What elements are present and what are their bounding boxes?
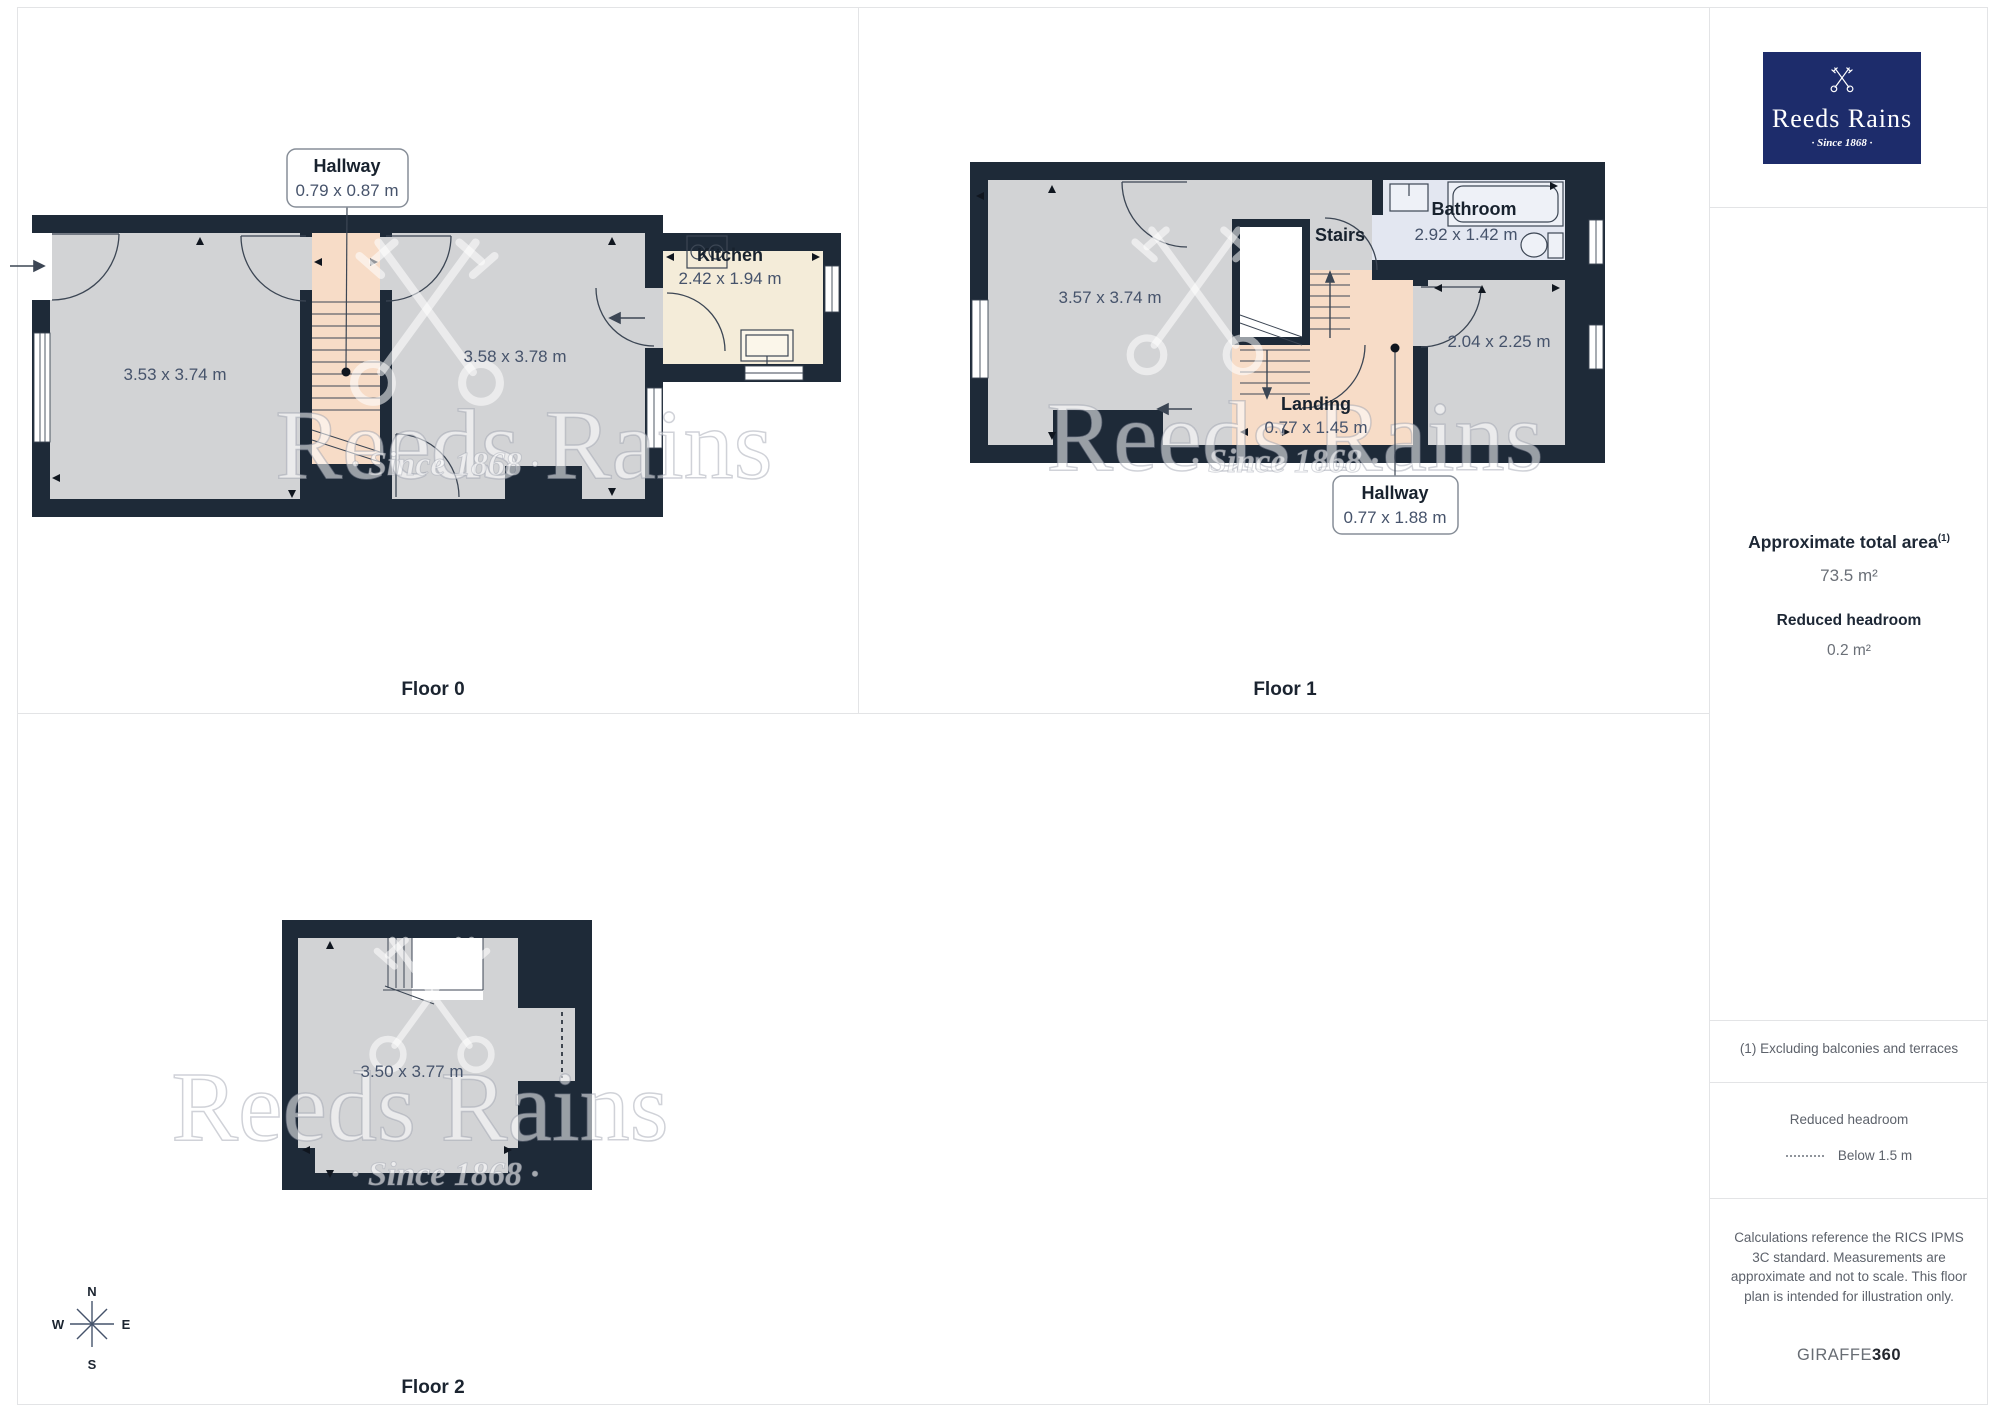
floor2-label: Floor 2 xyxy=(401,1377,464,1399)
compass-south-label: S xyxy=(88,1357,97,1372)
floorplan-page: Reeds Rains · Since 1868 · 3.53 x 3.74 m… xyxy=(0,0,2000,1414)
watermark-since: · Since 1868 · xyxy=(351,446,539,483)
floor1-callout-title: Hallway xyxy=(1361,483,1428,503)
legend-title: Reduced headroom xyxy=(1710,1112,1988,1127)
floorplans-canvas: Reeds Rains · Since 1868 · 3.53 x 3.74 m… xyxy=(0,0,2000,1414)
disclaimer-text: Calculations reference the RICS IPMS 3C … xyxy=(1726,1228,1972,1306)
floor1-callout-dims: 0.77 x 1.88 m xyxy=(1343,508,1446,527)
total-area-value: 73.5 m² xyxy=(1710,566,1988,586)
reduced-headroom-title: Reduced headroom xyxy=(1710,612,1988,630)
logo-crossed-keys-icon xyxy=(1807,52,1877,104)
floor0-label: Floor 0 xyxy=(401,679,464,701)
toilet-icon xyxy=(1521,233,1563,258)
bathroom-label: Bathroom xyxy=(1432,199,1517,219)
floor1-room-left-dims: 3.57 x 3.74 m xyxy=(1058,288,1161,307)
total-area-title-text: Approximate total area xyxy=(1748,532,1938,552)
watermark-since: · Since 1868 · xyxy=(1191,443,1379,480)
floor2-plan: Reeds Rains · Since 1868 · 3.50 x 3.77 m xyxy=(171,920,668,1193)
watermark-since: · Since 1868 · xyxy=(351,1156,539,1193)
total-area-title: Approximate total area(1) xyxy=(1710,532,1988,553)
watermark-brand: Reeds Rains xyxy=(275,389,772,500)
reeds-rains-logo: Reeds Rains · Since 1868 · xyxy=(1763,52,1921,164)
floor1-plan: Reeds Rains · Since 1868 · 3.57 x 3.74 m… xyxy=(970,162,1605,534)
floor0-plan: Reeds Rains · Since 1868 · 3.53 x 3.74 m… xyxy=(10,149,841,517)
floor0-room-left-dims: 3.53 x 3.74 m xyxy=(123,365,226,384)
total-area-superscript: (1) xyxy=(1938,533,1950,544)
reduced-headroom-value: 0.2 m² xyxy=(1710,642,1988,660)
landing-label: Landing xyxy=(1281,394,1351,414)
kitchen-label: Kitchen xyxy=(697,245,763,265)
kitchen-dims: 2.42 x 1.94 m xyxy=(678,269,781,288)
sink-icon xyxy=(741,330,793,364)
logo-since-text: · Since 1868 · xyxy=(1812,137,1873,149)
floor2-room-dims: 3.50 x 3.77 m xyxy=(360,1062,463,1081)
logo-brand-text: Reeds Rains xyxy=(1772,106,1912,132)
floor1-label: Floor 1 xyxy=(1253,679,1316,701)
floor0-room-middle-dims: 3.58 x 3.78 m xyxy=(463,347,566,366)
legend-item: Below 1.5 m xyxy=(1838,1148,1912,1163)
compass-west-label: W xyxy=(52,1317,65,1332)
compass-rose: N S W E xyxy=(52,1284,131,1372)
bathroom-dims: 2.92 x 1.42 m xyxy=(1414,225,1517,244)
landing-dims: 0.77 x 1.45 m xyxy=(1264,418,1367,437)
footnote: (1) Excluding balconies and terraces xyxy=(1710,1041,1988,1056)
legend-row: Below 1.5 m xyxy=(1710,1148,1988,1163)
giraffe360-brand: GIRAFFE360 xyxy=(1710,1346,1988,1365)
floor1-room-right-dims: 2.04 x 2.25 m xyxy=(1447,332,1550,351)
brand-giraffe-text: GIRAFFE xyxy=(1797,1346,1872,1364)
compass-north-label: N xyxy=(87,1284,96,1299)
floor0-callout-title: Hallway xyxy=(313,156,380,176)
stairs-label: Stairs xyxy=(1315,225,1365,245)
compass-east-label: E xyxy=(122,1317,131,1332)
floor0-callout-dims: 0.79 x 0.87 m xyxy=(295,181,398,200)
brand-360-text: 360 xyxy=(1872,1346,1901,1364)
dotted-line-icon xyxy=(1786,1155,1824,1157)
